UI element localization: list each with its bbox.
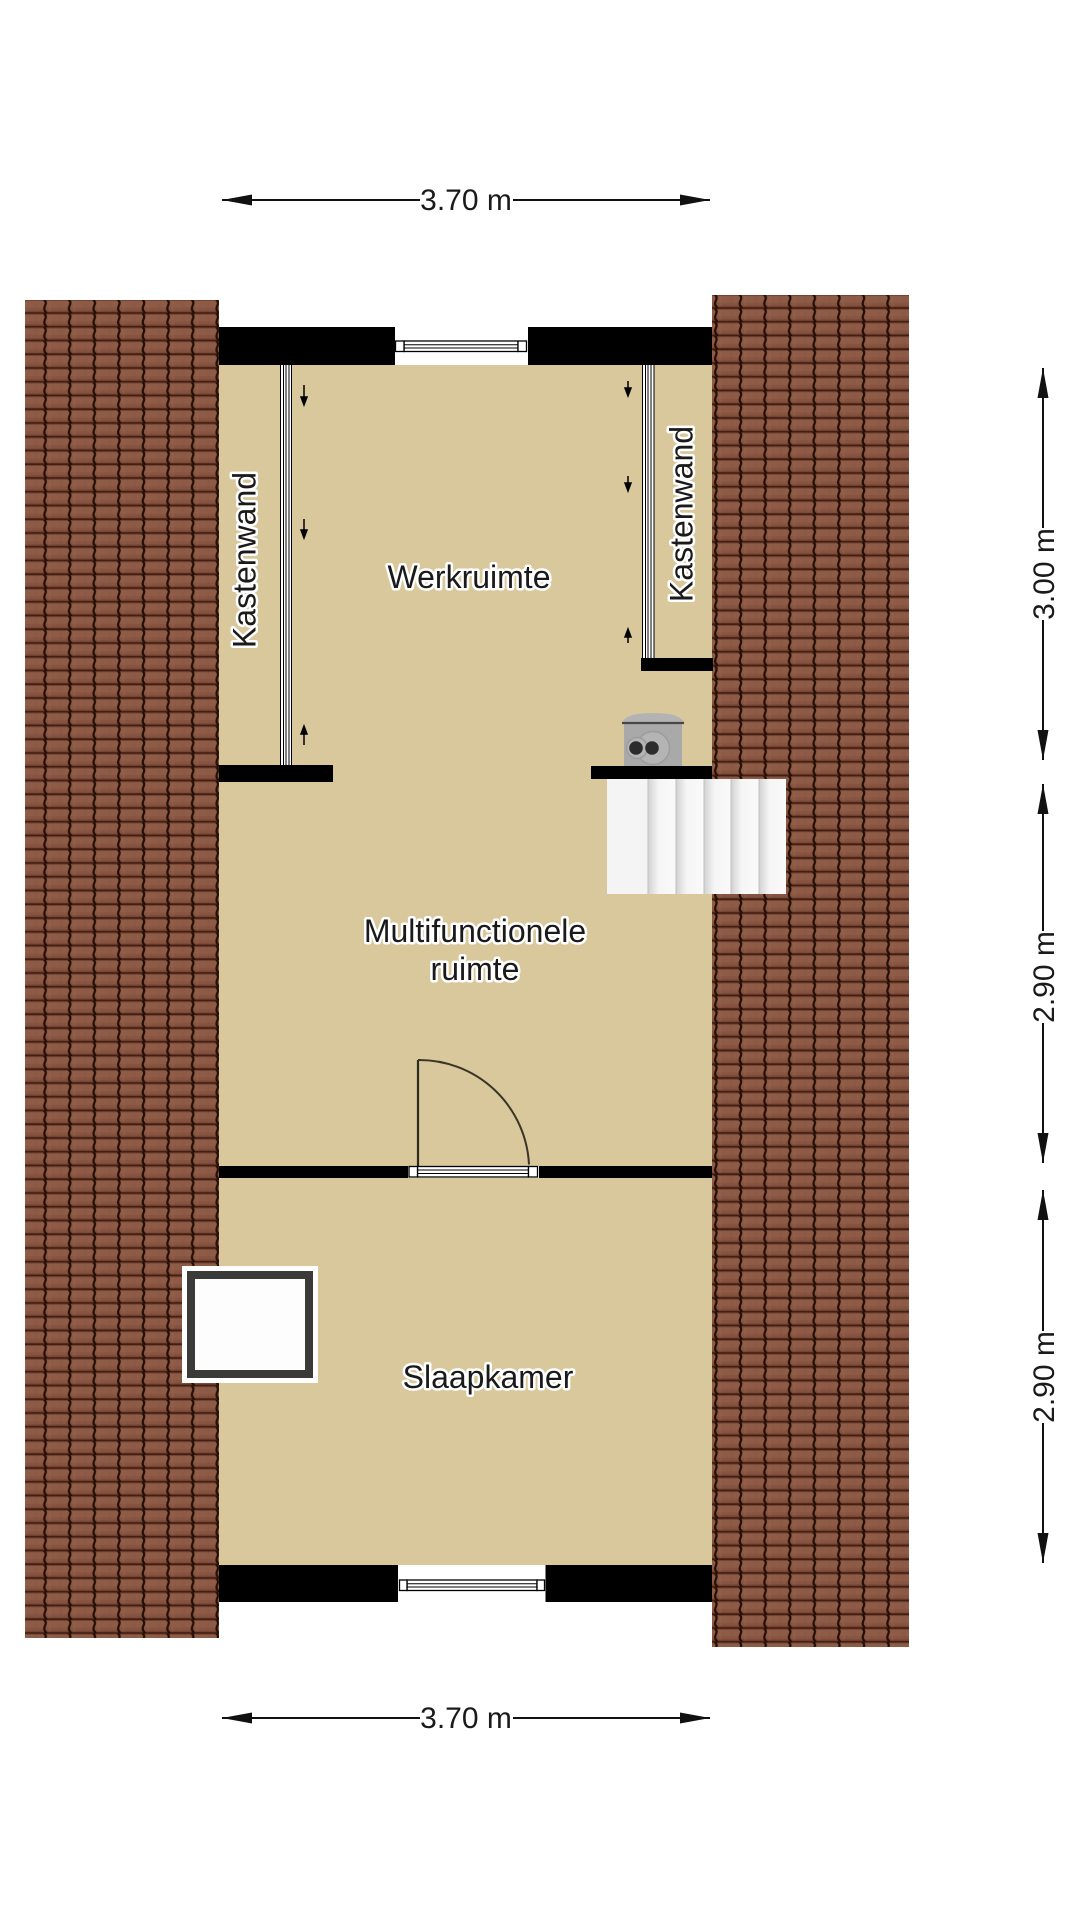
- svg-text:Kastenwand: Kastenwand: [226, 472, 262, 648]
- svg-text:3.70 m: 3.70 m: [420, 1702, 512, 1735]
- svg-text:Kastenwand: Kastenwand: [663, 426, 699, 602]
- svg-text:Multifunctionele: Multifunctionele: [364, 913, 586, 949]
- svg-text:2.90 m: 2.90 m: [1028, 1331, 1061, 1423]
- svg-text:Werkruimte: Werkruimte: [388, 559, 551, 595]
- svg-text:Slaapkamer: Slaapkamer: [403, 1359, 574, 1395]
- svg-text:3.70 m: 3.70 m: [420, 184, 512, 217]
- svg-text:3.00 m: 3.00 m: [1028, 528, 1061, 620]
- svg-text:2.90 m: 2.90 m: [1028, 931, 1061, 1023]
- svg-text:ruimte: ruimte: [431, 951, 520, 987]
